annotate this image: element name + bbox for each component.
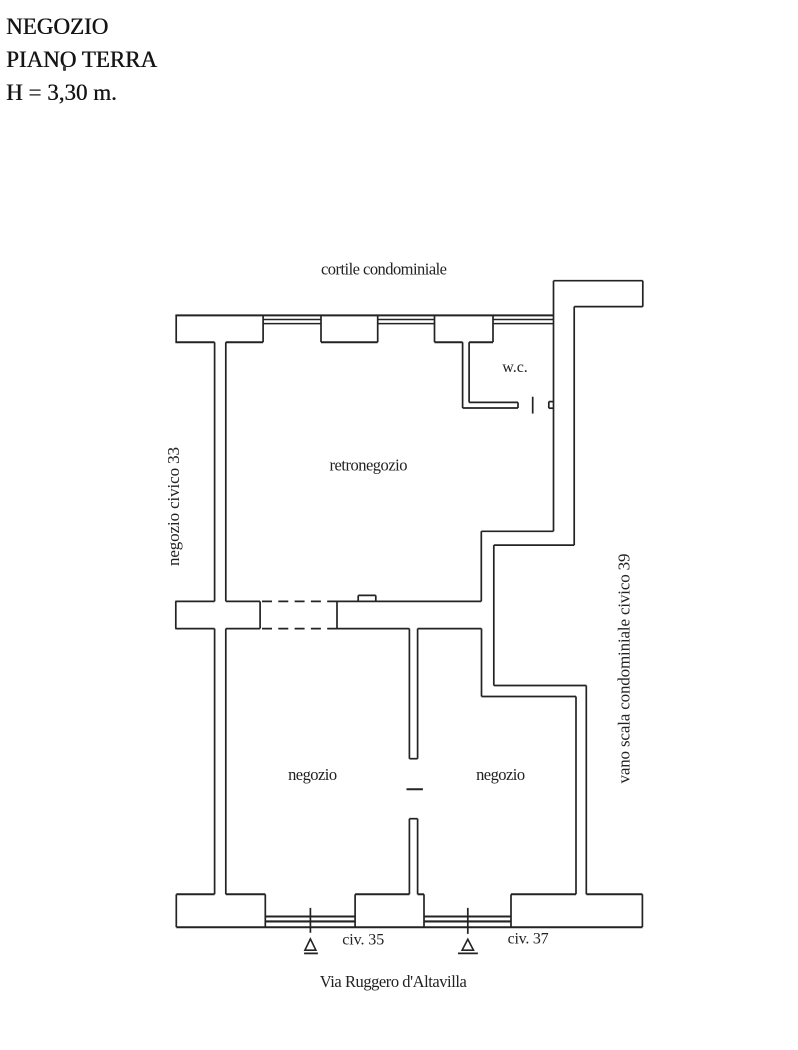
- svg-text:vano scala condominiale civico: vano scala condominiale civico 39: [615, 554, 634, 784]
- svg-text:Via Ruggero d'Altavilla: Via Ruggero d'Altavilla: [320, 972, 468, 991]
- svg-text:negozio: negozio: [288, 765, 337, 784]
- svg-text:civ. 35: civ. 35: [342, 932, 384, 949]
- svg-text:retronegozio: retronegozio: [330, 456, 408, 475]
- svg-text:w.c.: w.c.: [502, 359, 528, 376]
- svg-text:negozio civico 33: negozio civico 33: [164, 447, 183, 566]
- svg-text:negozio: negozio: [476, 765, 525, 784]
- svg-text:civ. 37: civ. 37: [508, 931, 549, 948]
- svg-text:cortile condominiale: cortile condominiale: [321, 260, 447, 279]
